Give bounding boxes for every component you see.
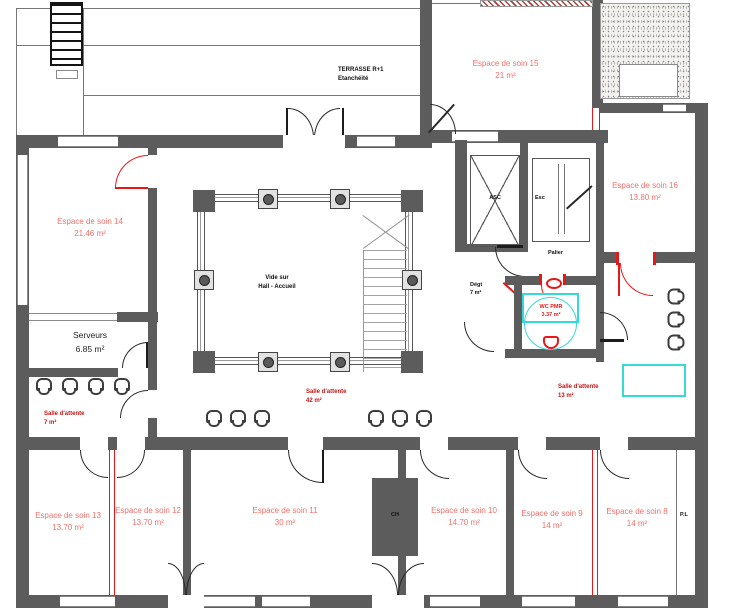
chair-icon xyxy=(88,378,104,391)
terrace-label-line1: TERRASSE R+1 xyxy=(338,66,384,75)
door-leaf xyxy=(146,342,148,368)
room-area: 7 m² xyxy=(470,290,482,298)
door-swing-red xyxy=(115,155,148,188)
door-swing xyxy=(117,450,145,478)
stair-spine xyxy=(558,164,559,234)
room-area: 7 m² xyxy=(44,419,84,428)
room-name: Espace de soin 16 xyxy=(595,180,695,192)
room-label-soin13: Espace de soin 13 13.70 m² xyxy=(20,510,116,534)
room-label-attente-center: Salle d'attente 42 m² xyxy=(306,388,346,406)
room-area: 30 m² xyxy=(210,517,360,529)
terrace-outline xyxy=(83,95,420,96)
pl-text: P.L xyxy=(680,512,688,518)
wall-segment xyxy=(514,285,522,358)
room-area: 13.80 m² xyxy=(595,192,695,204)
room-area: 13.70 m² xyxy=(20,522,116,534)
chair-icon xyxy=(668,289,681,305)
ch-text: CH xyxy=(391,512,399,518)
window xyxy=(357,136,395,147)
red-door-post xyxy=(653,252,656,265)
room-name: Serveurs xyxy=(28,328,152,342)
door-swing xyxy=(288,108,314,138)
column-post xyxy=(258,189,278,209)
duct-label: CH xyxy=(372,512,418,520)
room-label-soin9: Espace de soin 9 14 m² xyxy=(512,508,592,532)
room-area: 21 m² xyxy=(448,70,563,82)
door-opening xyxy=(168,595,204,608)
room-name: Espace de soin 9 xyxy=(512,508,592,520)
room-name: Espace de soin 10 xyxy=(420,505,508,517)
door-opening xyxy=(117,437,145,450)
window xyxy=(58,136,118,147)
window xyxy=(522,596,575,607)
door-swing xyxy=(600,312,628,340)
room-area: 3.37 m² xyxy=(524,311,578,319)
column-post xyxy=(193,190,215,212)
toilet-icon xyxy=(546,278,562,289)
door-swing xyxy=(464,322,494,352)
exterior-stair xyxy=(50,2,83,66)
room-name: Espace de soin 13 xyxy=(20,510,116,522)
door-swing xyxy=(314,108,340,138)
door-swing xyxy=(600,450,629,479)
column-post xyxy=(401,351,423,373)
stair-dimension-box xyxy=(56,70,78,79)
window xyxy=(430,596,480,607)
terrace-label-line2: Etanchéité xyxy=(338,75,384,84)
void-label-line2: Hall - Accueil xyxy=(232,283,322,292)
chair-icon xyxy=(254,410,270,423)
window xyxy=(17,155,28,305)
door-swing xyxy=(80,450,108,478)
terrace-outline xyxy=(83,8,84,135)
room-name: WC PMR xyxy=(524,303,578,311)
chair-icon xyxy=(206,410,222,423)
door-swing-red xyxy=(620,263,653,296)
void-label-line1: Vide sur xyxy=(232,274,322,283)
door-swing xyxy=(518,450,547,479)
wall-segment xyxy=(505,349,604,358)
door-leaf xyxy=(497,245,523,248)
elevator-label: ASC xyxy=(470,195,520,203)
wall-segment xyxy=(16,368,118,377)
room-area: 14.70 m² xyxy=(420,517,508,529)
window xyxy=(60,596,115,607)
balustrade xyxy=(205,194,405,202)
chair-icon xyxy=(36,378,52,391)
landing-label: Palier xyxy=(548,250,563,258)
wall-segment xyxy=(656,252,695,263)
door-leaf-red xyxy=(115,187,148,189)
asc-text: ASC xyxy=(489,195,501,201)
room-name: Espace de soin 15 xyxy=(448,58,563,70)
window xyxy=(618,596,668,607)
column-post xyxy=(194,270,214,290)
stair-label: Esc xyxy=(535,195,545,203)
wall-thin xyxy=(676,450,677,595)
terrace-outline xyxy=(16,8,17,135)
column-post xyxy=(258,352,278,372)
wall-bottom xyxy=(16,595,708,608)
wall-right xyxy=(695,103,708,608)
chair-icon xyxy=(668,335,681,351)
room-label-wc-pmr: WC PMR 3.37 m² xyxy=(524,303,578,320)
room-name: Salle d'attente xyxy=(306,388,346,397)
room-name: Espace de soin 11 xyxy=(210,505,360,517)
window xyxy=(262,596,310,607)
chair-icon xyxy=(668,312,681,328)
chair-icon xyxy=(62,378,78,391)
window xyxy=(200,596,255,607)
wall-segment xyxy=(520,140,528,252)
room-label-soin12: Espace de soin 12 13.70 m² xyxy=(112,505,184,529)
room-label-attente-left: Salle d'attente 7 m² xyxy=(44,410,84,428)
column-post xyxy=(193,351,215,373)
room-label-soin14: Espace de soin 14 21.46 m² xyxy=(28,216,152,240)
door-swing xyxy=(288,450,323,483)
terrace-outline xyxy=(83,45,428,46)
door-opening xyxy=(420,437,448,450)
chair-icon xyxy=(368,410,384,423)
terrace-label: TERRASSE R+1 Etanchéité xyxy=(338,66,384,84)
room-name: Salle d'attente xyxy=(558,383,598,392)
hatched-strip xyxy=(480,0,593,7)
door-opening xyxy=(518,437,546,450)
door-swing xyxy=(430,104,456,134)
column-post xyxy=(330,189,350,209)
room-label-degt: Dégt 7 m² xyxy=(470,282,482,297)
wall-segment xyxy=(455,140,467,252)
room-label-soin16: Espace de soin 16 13.80 m² xyxy=(595,180,695,204)
door-leaf xyxy=(322,450,324,483)
door-leaf xyxy=(342,108,344,138)
room-area: 13.70 m² xyxy=(112,517,184,529)
window xyxy=(663,104,686,112)
room-name: Espace de soin 12 xyxy=(112,505,184,517)
wall-segment xyxy=(148,135,157,155)
door-leaf-red xyxy=(618,263,620,296)
room-label-soin15: Espace de soin 15 21 m² xyxy=(448,58,563,82)
room-name: Espace de soin 8 xyxy=(598,506,676,518)
red-door-post xyxy=(539,274,542,285)
room-label-soin8: Espace de soin 8 14 m² xyxy=(598,506,676,530)
door-swing xyxy=(420,450,449,479)
room-area: 14 m² xyxy=(598,518,676,530)
chair-icon xyxy=(230,410,246,423)
room-name: Espace de soin 14 xyxy=(28,216,152,228)
window xyxy=(29,313,117,321)
door-opening xyxy=(80,437,108,450)
door-opening xyxy=(372,595,424,608)
room-label-soin11: Espace de soin 11 30 m² xyxy=(210,505,360,529)
chair-icon xyxy=(114,378,130,391)
furniture-rect xyxy=(622,364,686,397)
room-area: 42 m² xyxy=(306,397,346,406)
terrace-outline xyxy=(16,45,50,46)
door-opening xyxy=(283,135,345,148)
door-opening xyxy=(288,437,323,450)
wall-segment xyxy=(117,312,158,322)
closet-label: P.L xyxy=(680,512,688,520)
door-swing xyxy=(495,247,525,277)
room-area: 13 m² xyxy=(558,392,598,401)
palier-text: Palier xyxy=(548,250,563,256)
chair-icon xyxy=(392,410,408,423)
room-name: Dégt xyxy=(470,282,482,290)
wall-segment xyxy=(148,418,157,437)
column-post xyxy=(402,270,422,290)
floor-plan: TERRASSE R+1 Etanchéité Espace de soin 1… xyxy=(0,0,748,612)
rooflight-rect xyxy=(619,64,678,97)
column-post xyxy=(401,190,423,212)
room-area: 21.46 m² xyxy=(28,228,152,240)
room-label-soin10: Espace de soin 10 14.70 m² xyxy=(420,505,508,529)
stair-spine xyxy=(564,164,565,234)
red-door-post xyxy=(563,274,566,285)
room-area: 14 m² xyxy=(512,520,592,532)
door-opening xyxy=(600,437,628,450)
column-post xyxy=(330,352,350,372)
wall-segment xyxy=(596,252,618,263)
door-leaf xyxy=(600,339,624,342)
door-swing xyxy=(372,563,398,595)
void-label: Vide sur Hall - Accueil xyxy=(232,274,322,292)
room-label-attente-right: Salle d'attente 13 m² xyxy=(558,383,598,401)
room-name: Salle d'attente xyxy=(44,410,84,419)
chair-icon xyxy=(416,410,432,423)
esc-text: Esc xyxy=(535,195,545,201)
